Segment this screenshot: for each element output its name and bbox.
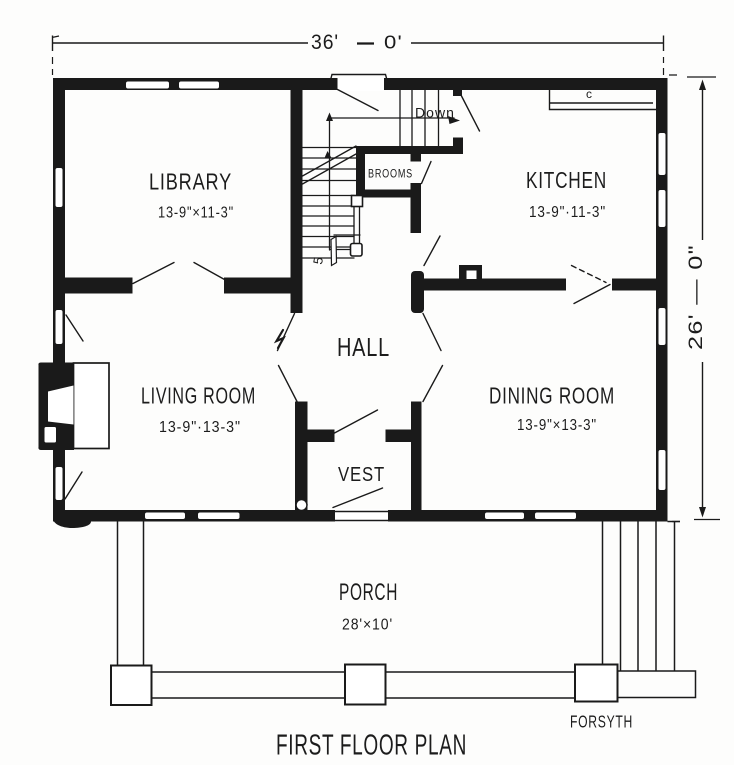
- svg-text:c: c: [586, 87, 592, 101]
- svg-text:KITCHEN: KITCHEN: [526, 167, 607, 193]
- svg-text:36': 36': [311, 31, 339, 54]
- svg-text:HALL: HALL: [337, 332, 390, 362]
- svg-text:PORCH: PORCH: [339, 579, 398, 606]
- svg-text:13-9"×11-3": 13-9"×11-3": [158, 205, 234, 222]
- svg-text:FORSYTH: FORSYTH: [570, 712, 633, 732]
- svg-text:LIBRARY: LIBRARY: [149, 169, 232, 195]
- svg-text:BROOMS: BROOMS: [368, 169, 413, 181]
- svg-text:13-9"×13-3": 13-9"×13-3": [517, 417, 597, 434]
- svg-text:LIVING ROOM: LIVING ROOM: [141, 383, 256, 409]
- svg-text:13-9"·13-3": 13-9"·13-3": [159, 419, 241, 436]
- svg-text:0': 0': [384, 33, 403, 53]
- svg-text:DINING ROOM: DINING ROOM: [489, 383, 615, 409]
- svg-text:Down: Down: [415, 106, 455, 121]
- svg-text:FIRST FLOOR PLAN: FIRST FLOOR PLAN: [276, 730, 467, 762]
- svg-text:13-9"·11-3": 13-9"·11-3": [529, 204, 606, 221]
- svg-text:26' — 0": 26' — 0": [686, 244, 707, 350]
- svg-text:28'×10': 28'×10': [342, 617, 393, 634]
- svg-text:VEST: VEST: [338, 464, 385, 486]
